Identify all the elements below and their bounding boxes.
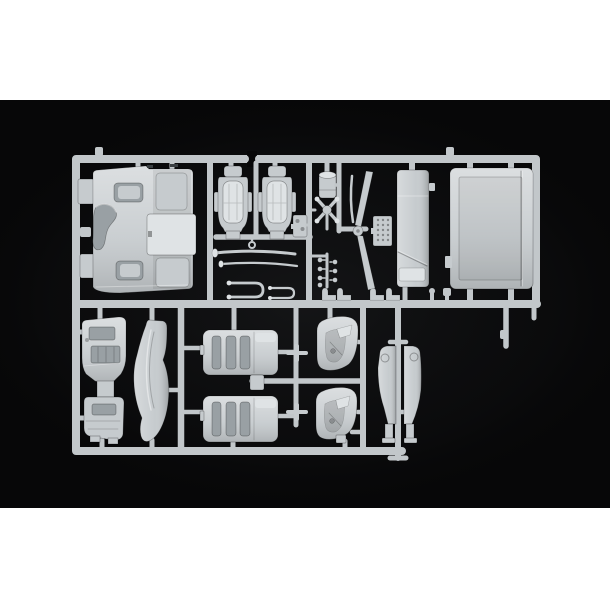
part-air-tank: [319, 172, 339, 199]
part-bunk-side-panel: [397, 170, 435, 287]
part-seat-base-top: [200, 330, 278, 375]
part-cab-back-panel: [78, 164, 196, 293]
part-roof-panel: [445, 168, 533, 289]
product-photo: [0, 0, 610, 610]
part-pedal-bracket: [291, 215, 310, 237]
part-vent-grille: [371, 216, 392, 246]
